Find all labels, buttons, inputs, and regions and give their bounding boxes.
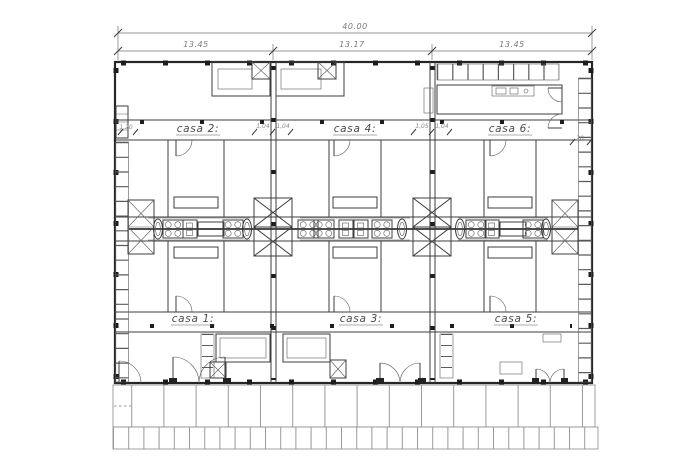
casa-1-label: casa 1: <box>172 313 215 325</box>
dim-mid2-b: 1,04 <box>435 123 449 130</box>
dimension-lines: 40.00 13.45 13.17 13.45 <box>114 22 596 60</box>
dim-mid2-a: 1,05 <box>415 123 429 130</box>
casa-4-label: casa 4: <box>334 123 377 135</box>
dim-overall: 40.00 <box>342 22 367 31</box>
dim-segment-2: 13.17 <box>339 40 365 49</box>
floor-plan-page: 40.00 13.45 13.17 13.45 <box>0 0 700 466</box>
floor-plan-drawing: 40.00 13.45 13.17 13.45 <box>0 0 700 466</box>
casa-5-label: casa 5: <box>495 313 538 325</box>
front-porches <box>201 334 561 378</box>
casa-3-label: casa 3: <box>340 313 383 325</box>
entry-doors <box>169 357 568 384</box>
terrace-grid <box>113 385 595 427</box>
dim-left-120: 1,20 <box>119 124 133 131</box>
casa-6-label: casa 6: <box>489 123 532 135</box>
casa-2-label: casa 2: <box>177 123 220 135</box>
room-doors-and-tables <box>119 140 532 383</box>
dim-mid1-b: 1,04 <box>276 123 290 130</box>
rear-patio-structures <box>212 62 562 128</box>
dim-segment-3: 13.45 <box>499 40 524 49</box>
paving-grid <box>113 427 598 449</box>
dim-right-20: 20 <box>576 135 584 142</box>
dim-segment-1: 13.45 <box>183 40 208 49</box>
dim-mid1-a: 1,04 <box>256 123 270 130</box>
